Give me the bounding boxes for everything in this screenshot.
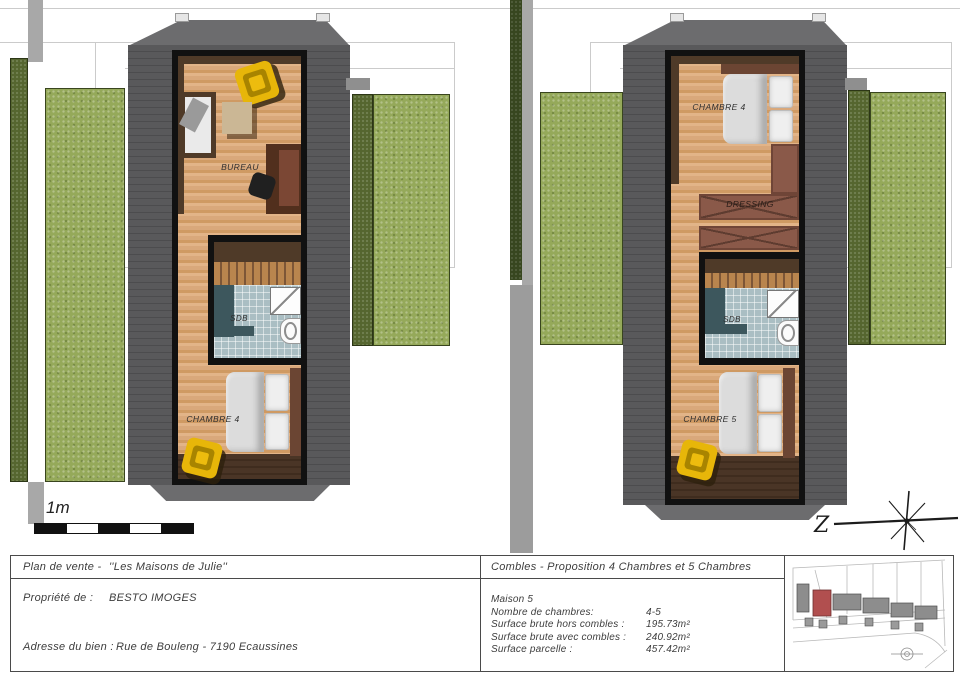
roof-ridge [128, 20, 350, 46]
building-interior: BUREAU SDB [172, 50, 307, 485]
wood-floor: CHAMBRE 4 DRESSING SDB [671, 56, 799, 499]
compass-rose: Z [812, 488, 960, 552]
scale-segment [130, 524, 162, 533]
bed-pillow [265, 374, 289, 411]
bed-pillow [769, 110, 793, 142]
bed-duvet [226, 372, 264, 452]
spec-row: Surface brute hors combles : 195.73m² [491, 619, 690, 632]
chimney [812, 13, 826, 22]
staircase [705, 273, 799, 288]
interior-wall [208, 358, 301, 365]
spec-value: 4-5 [646, 607, 661, 620]
double-bed [226, 372, 290, 452]
armchair-seat [189, 445, 216, 472]
floor-plan-sheet: BUREAU SDB [0, 0, 960, 679]
hedge-strip [352, 94, 373, 346]
bed-headboard [721, 64, 799, 74]
staircase [214, 262, 301, 285]
title-block-sheet-column: Combles - Proposition 4 Chambres et 5 Ch… [481, 556, 785, 671]
garden-grass [870, 92, 946, 345]
owner-value: BESTO IMOGES [109, 592, 197, 604]
house-name: Maison 5 [491, 594, 690, 607]
spec-label: Surface parcelle : [491, 644, 646, 657]
scale-segment [35, 524, 67, 533]
hedge-strip [10, 58, 28, 482]
wall-pier [845, 78, 867, 90]
spec-label: Surface brute hors combles : [491, 619, 646, 632]
path-strip [522, 0, 533, 285]
shower [270, 287, 301, 315]
owner-label: Propriété de : [23, 592, 93, 604]
armchair-cushion [248, 74, 266, 92]
armchair-cushion [690, 453, 705, 468]
double-bed [719, 372, 783, 454]
roof-eave [645, 505, 825, 520]
title-block: Plan de vente - ''Les Maisons de Julie''… [10, 555, 954, 672]
desk-top [279, 150, 299, 206]
doc-type-row: Plan de vente - ''Les Maisons de Julie'' [11, 556, 480, 579]
bed-headboard [290, 368, 301, 456]
bathroom-wall-shadow [705, 324, 747, 334]
path-strip [28, 0, 43, 62]
sheet-title-row: Combles - Proposition 4 Chambres et 5 Ch… [481, 556, 784, 579]
spec-value: 457.42m² [646, 644, 690, 657]
interior-wall [208, 235, 301, 242]
path-strip [28, 482, 44, 524]
garden-grass [540, 92, 623, 345]
washbasin [777, 320, 799, 346]
eave-shadow [671, 64, 679, 184]
armchair-seat [684, 447, 711, 474]
title-block-project-column: Plan de vente - ''Les Maisons de Julie''… [11, 556, 481, 671]
garden-grass [45, 88, 125, 482]
bed-pillow [769, 76, 793, 108]
parcel-line-top [0, 8, 960, 9]
spec-row: Surface brute avec combles : 240.92m² [491, 632, 690, 645]
interior-wall [699, 358, 799, 365]
armchair-seat [242, 68, 272, 98]
bed-headboard [783, 368, 795, 458]
chimney [670, 13, 684, 22]
washbasin [280, 318, 301, 344]
compass-axis-ew [834, 518, 958, 524]
compass-label: Z [813, 513, 830, 538]
chimney [316, 13, 330, 22]
washbasin-bowl [781, 324, 795, 342]
spec-row: Nombre de chambres: 4-5 [491, 607, 690, 620]
room-label-bureau: BUREAU [198, 162, 282, 172]
spec-label: Surface brute avec combles : [491, 632, 646, 645]
spec-value: 240.92m² [646, 632, 690, 645]
wardrobe [699, 226, 799, 250]
parcel-line-left [0, 42, 96, 43]
room-label-chambre4: CHAMBRE 4 [679, 102, 759, 112]
building-interior: CHAMBRE 4 DRESSING SDB [665, 50, 805, 505]
room-label-chambre5: CHAMBRE 5 [673, 414, 747, 424]
bed-duvet [719, 372, 757, 454]
eave-shadow [671, 56, 799, 64]
roundabout [891, 648, 923, 660]
sheet-title: Combles - Proposition 4 Chambres et 5 Ch… [491, 561, 751, 573]
bed-pillow [265, 413, 289, 450]
address-value: Rue de Bouleng - 7190 Ecaussines [116, 641, 298, 653]
roof-eave [150, 485, 330, 501]
hedge-strip [510, 0, 522, 280]
bed-pillow [758, 414, 782, 452]
address-label: Adresse du bien : [23, 641, 114, 653]
site-location-map [785, 556, 952, 670]
wall-pier [346, 78, 370, 90]
bathroom-wall-shadow [214, 326, 254, 336]
interior-wall [699, 252, 799, 259]
spec-label: Nombre de chambres: [491, 607, 646, 620]
armchair-cushion [195, 451, 210, 466]
spec-row: Surface parcelle : 457.42m² [491, 644, 690, 657]
wood-floor: BUREAU SDB [178, 56, 301, 479]
room-label-chambre4: CHAMBRE 4 [178, 414, 248, 424]
bed-pillow [758, 374, 782, 412]
scale-segment [98, 524, 130, 533]
room-label-sdb: SDB [707, 315, 757, 324]
subject-house-highlight [813, 590, 831, 616]
eave-shadow [178, 56, 301, 64]
room-label-sdb: SDB [214, 314, 264, 323]
doc-type-value: ''Les Maisons de Julie'' [109, 561, 227, 573]
room-label-dressing: DRESSING [707, 199, 793, 209]
roof-ridge [623, 20, 847, 46]
spec-value: 195.73m² [646, 619, 690, 632]
hedge-strip [848, 90, 870, 345]
armchair-yellow [233, 59, 281, 107]
stair-landing [214, 242, 301, 262]
washbasin-bowl [284, 322, 297, 340]
compass-center [904, 518, 909, 523]
wardrobe [771, 144, 799, 194]
house-specs: Maison 5 Nombre de chambres: 4-5 Surface… [491, 594, 690, 657]
scale-segment [161, 524, 193, 533]
side-table [222, 102, 252, 134]
title-block-map-column [785, 556, 952, 671]
chaise-longue [180, 92, 216, 158]
stair-landing [705, 259, 799, 273]
garden-grass [373, 94, 450, 346]
scale-segment [67, 524, 99, 533]
driveway [510, 285, 533, 553]
doc-type-label: Plan de vente - [23, 561, 102, 573]
shower [767, 290, 799, 318]
chimney [175, 13, 189, 22]
scale-label: 1m [46, 498, 70, 518]
scale-bar [34, 523, 194, 534]
